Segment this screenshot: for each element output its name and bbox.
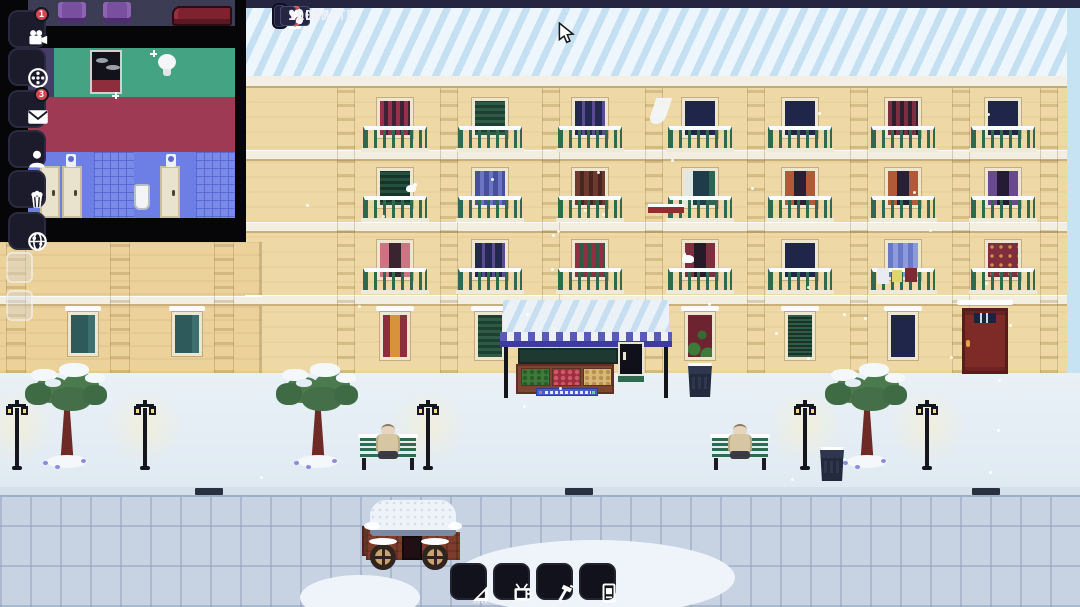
game-viewport: 1906 08:07 ♪ ♫ » 0 ILLIM (0, 0, 1080, 607)
ground-window (380, 312, 410, 360)
curb-marker (972, 488, 1000, 495)
lamp-lantern (149, 406, 156, 415)
fallen-leaves (55, 465, 60, 469)
lamp-post (803, 408, 807, 468)
snowflake (491, 178, 494, 181)
sidebar-item-camera[interactable]: 1 (8, 10, 46, 48)
snowflake (791, 478, 794, 481)
snowflake (950, 356, 953, 359)
lamp-lantern (432, 406, 439, 415)
tree-foliage (334, 385, 358, 405)
restroom-sign-men (166, 154, 176, 167)
purple-sofa (103, 2, 131, 24)
bench-leg (410, 458, 414, 470)
balcony (768, 268, 832, 292)
cart-wheel (370, 544, 396, 570)
balcony (768, 126, 832, 150)
building-entrance-door[interactable] (962, 300, 1008, 374)
snowflake (913, 191, 916, 194)
stall-post (504, 347, 508, 398)
snowflake (526, 313, 529, 316)
white-lamp (158, 54, 176, 70)
fallen-leaves (881, 459, 886, 463)
snowflake (708, 303, 711, 306)
tree-foliage (859, 363, 889, 377)
snowflake (997, 429, 1000, 432)
wheel-snow (421, 538, 449, 545)
stall-post (664, 347, 668, 398)
tree-foliage (45, 379, 61, 387)
flowerbox-decoration (648, 204, 684, 213)
lamp-base (922, 466, 932, 470)
balcony (871, 126, 935, 150)
toolbar-item-projector[interactable] (493, 563, 530, 600)
wheel-snow (369, 538, 397, 545)
snowflake (807, 357, 810, 360)
stall-door (160, 166, 180, 218)
snowflake (523, 405, 526, 408)
ground-window (685, 312, 715, 360)
stall-price-sign (536, 388, 598, 396)
tree-foliage (336, 373, 356, 383)
stall-awning-snow (503, 300, 669, 334)
snowflake (306, 204, 309, 207)
snowflake (751, 187, 754, 190)
window-lintel-snow (681, 306, 719, 311)
lamp-lantern (417, 406, 424, 415)
stall-awning-skirt (500, 341, 672, 347)
door-transom (974, 313, 996, 323)
cart-snow (364, 522, 380, 530)
lamp-lantern (916, 406, 923, 415)
lamp-lantern (794, 406, 801, 415)
sidebar-item-concessions[interactable] (8, 170, 46, 208)
ground-window (785, 312, 815, 360)
snowflake (807, 286, 810, 289)
fallen-leaves (332, 459, 337, 463)
stall-door-mat (618, 376, 644, 382)
window-lintel-snow (169, 306, 205, 311)
notification-badge: 1 (34, 7, 49, 22)
fallen-leaves (43, 461, 48, 465)
snowflake (559, 387, 562, 390)
vendor-cart[interactable] (362, 498, 464, 572)
toolbar-item-build[interactable] (450, 563, 487, 600)
lobby-room (28, 0, 235, 26)
trash-bin (820, 447, 844, 481)
balcony (363, 126, 427, 150)
cart-snow-canopy (370, 500, 456, 536)
snowflake (775, 332, 778, 335)
door-lintel-snow (957, 300, 1013, 305)
snowflake (671, 159, 674, 162)
snowflake (843, 458, 846, 461)
window-lintel-snow (65, 306, 101, 311)
restroom-sign-women (66, 154, 76, 167)
sidebar-item-films[interactable] (8, 48, 46, 86)
trash-bin (688, 363, 712, 397)
reputation-value: 100 (288, 9, 313, 24)
tree (276, 363, 360, 468)
movie-poster (90, 50, 122, 94)
disabled-slot-button[interactable] (6, 290, 33, 321)
pilaster-strip (1040, 88, 1058, 373)
snowflake (998, 379, 1001, 382)
ground-window (888, 312, 918, 360)
tree-foliage (296, 379, 312, 387)
snowflake (987, 113, 990, 116)
sparkle (112, 92, 119, 99)
bird-decoration (406, 185, 416, 192)
lamp-base (423, 466, 433, 470)
tree-foliage (83, 385, 107, 405)
balcony (363, 268, 427, 292)
balcony (668, 126, 732, 150)
balcony (558, 196, 622, 220)
tile-wall (94, 152, 134, 218)
balcony (458, 196, 522, 220)
stall-door (62, 166, 82, 218)
fallen-leaves (81, 459, 86, 463)
balcony (768, 196, 832, 220)
snowflake (552, 234, 555, 237)
tree-foliage (885, 373, 905, 383)
snowflake (929, 229, 932, 232)
produce-crate-greens (521, 368, 550, 386)
snowflake (584, 209, 587, 212)
tree-foliage (883, 385, 907, 405)
tree-foliage (59, 363, 89, 377)
lamp-lantern (134, 406, 141, 415)
laundry-yellow-decoration (892, 270, 902, 282)
snowflake (551, 268, 554, 271)
bench-leg (362, 458, 366, 470)
lamp-base (800, 466, 810, 470)
sidebar-item-mail[interactable]: 3 (8, 90, 46, 128)
lamp-base (12, 466, 22, 470)
pilaster-strip (337, 88, 355, 373)
sky (1067, 0, 1080, 380)
green-room (28, 48, 235, 97)
produce-table[interactable] (516, 364, 614, 394)
window-lintel-snow (376, 306, 414, 311)
cart-hatch (402, 536, 422, 560)
laundry-white-decoration (877, 268, 889, 284)
pilaster-strip (747, 88, 765, 373)
snowflake (260, 476, 263, 479)
bench-leg (762, 458, 766, 470)
snowflake (818, 112, 821, 115)
curb-marker (565, 488, 593, 495)
snowy-roof (245, 8, 1067, 78)
balcony (363, 196, 427, 220)
balcony (971, 126, 1035, 150)
purple-sofa (58, 2, 86, 24)
balcony (558, 126, 622, 150)
pilaster-strip (440, 88, 458, 373)
bench-leg (714, 458, 718, 470)
sidebar-item-world[interactable] (8, 212, 46, 250)
sparkle (150, 50, 157, 57)
red-bed (172, 6, 232, 26)
snowflake (382, 215, 385, 218)
curb-marker (195, 488, 223, 495)
lamp-lantern (809, 406, 816, 415)
window-lintel-snow (884, 306, 922, 311)
person-legs (730, 451, 750, 459)
red-room (28, 97, 235, 152)
top-hud-bar: 1906 08:07 ♪ ♫ » 0 ILLIM (272, 3, 288, 29)
snowflake (985, 282, 988, 285)
toilet (134, 184, 150, 210)
window-lintel-snow (781, 306, 819, 311)
bench-person (376, 424, 400, 460)
balcony (458, 126, 522, 150)
curb (0, 487, 1080, 497)
lamp-post (925, 408, 929, 468)
balcony (458, 268, 522, 292)
lamp-post (15, 408, 19, 468)
balcony (668, 268, 732, 292)
snowflake (864, 317, 867, 320)
cart-snow (448, 522, 462, 530)
ground-window (172, 312, 202, 356)
balcony (971, 268, 1035, 292)
cart-wheel (422, 544, 448, 570)
balcony (971, 196, 1035, 220)
snowflake (843, 313, 846, 316)
lamp-post (426, 408, 430, 468)
toolbar-item-construct[interactable] (536, 563, 573, 600)
snowflake (358, 305, 361, 308)
balcony (558, 268, 622, 292)
lamp-base (140, 466, 150, 470)
snowflake (1009, 324, 1012, 327)
bathroom (28, 152, 235, 218)
stall-awning-checks (500, 332, 672, 341)
produce-crate-apples (552, 368, 581, 386)
reputation-display: ♥ 100 (280, 6, 296, 26)
disabled-slot-button[interactable] (6, 252, 33, 283)
cat-decoration (682, 255, 694, 263)
tree (25, 363, 109, 468)
fallen-leaves (306, 465, 311, 469)
snowflake (602, 213, 605, 216)
pilaster-strip (850, 88, 868, 373)
snowflake (597, 171, 600, 174)
produce-crate-potatoes (583, 368, 612, 386)
laundry-red-decoration (905, 268, 917, 282)
pilaster-strip (214, 242, 234, 373)
sidebar-item-staff[interactable] (8, 130, 46, 168)
bench-person (728, 424, 752, 460)
notification-badge: 3 (34, 87, 49, 102)
tree-foliage (85, 373, 105, 383)
fallen-leaves (843, 461, 848, 465)
tile-wall (196, 152, 235, 218)
stall-door[interactable] (618, 342, 644, 376)
lamp-post (143, 408, 147, 468)
stall-chalkboard (518, 348, 618, 364)
person-legs (378, 451, 398, 459)
ground-window (68, 312, 98, 356)
pilaster-strip (110, 242, 130, 373)
snowflake (557, 230, 560, 233)
fallen-leaves (294, 461, 299, 465)
tree-foliage (845, 379, 861, 387)
tree-foliage (310, 363, 340, 377)
snowflake (989, 471, 992, 474)
door-handle (966, 340, 970, 347)
lamp-lantern (931, 406, 938, 415)
balcony (871, 196, 935, 220)
fallen-leaves (855, 465, 860, 469)
cornice (245, 76, 1067, 88)
lamp-lantern (6, 406, 13, 415)
toolbar-item-poster[interactable] (579, 563, 616, 600)
